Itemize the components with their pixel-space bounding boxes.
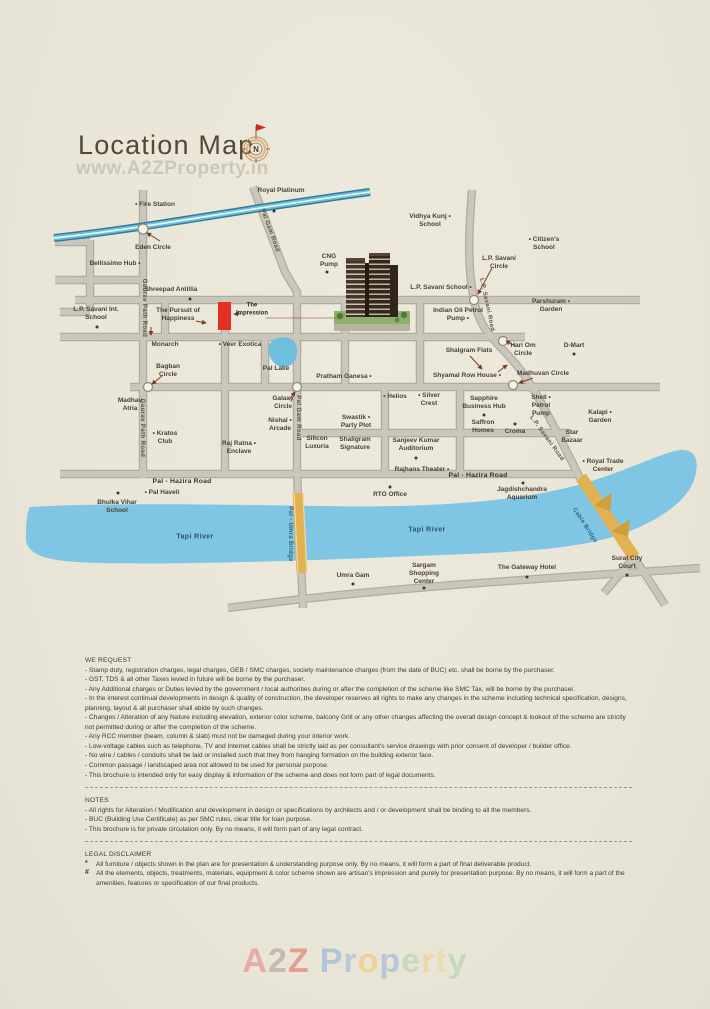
label-shreepad-antillia: Shreepad Antillia xyxy=(145,286,198,294)
label-nishal-arcade: Nishal • Arcade xyxy=(263,417,297,433)
location-map: • Fire Station Royal Platinum Eden Circl… xyxy=(0,175,710,625)
we-request-section: WE REQUEST - Stamp duty, registration ch… xyxy=(85,656,632,780)
label-madhuvan-circle: Madhuvan Circle xyxy=(517,370,569,378)
label-bhulka-vihar-school: Bhulka Vihar School xyxy=(93,499,141,515)
label-rto-office: RTO Office xyxy=(373,491,407,499)
label-tapi-river-west: Tapi River xyxy=(176,534,213,543)
label-pratham-ganesa: Pratham Ganesa • xyxy=(316,373,371,381)
poi-dot xyxy=(483,414,486,417)
label-eden-circle: Eden Circle xyxy=(133,244,173,252)
we-request-item: - Changes / Alteration of any Nature inc… xyxy=(85,713,632,732)
we-request-item: - Any RCC member (beam, column & slab) m… xyxy=(85,732,632,742)
building-rendering xyxy=(334,253,410,331)
poi-dot xyxy=(514,423,517,426)
map-canvas xyxy=(0,175,710,625)
poi-dot xyxy=(573,353,576,356)
label-pal-hazira-road-west: Pal - Hazira Road xyxy=(153,478,212,486)
watermark-letter: Z xyxy=(288,942,310,981)
label-the-impression: The Impression xyxy=(234,303,270,318)
label-monarch: Monarch xyxy=(151,341,178,349)
watermark-letter: e xyxy=(401,942,421,981)
label-silicon-luxuria: Silicon Luxuria xyxy=(301,435,333,451)
label-pursuit-of-happiness: The Pursuit of Happiness xyxy=(156,307,200,323)
legal-marker: * xyxy=(85,860,96,870)
label-jagdishchandra-aquarium: Jagdishchandra Aquarium xyxy=(489,486,555,502)
label-royal-platinum: Royal Platinum xyxy=(256,187,306,195)
we-request-item: - Common passage / landscaped area not a… xyxy=(85,761,632,771)
we-request-item: - Any Additional charges or Duties levie… xyxy=(85,685,632,695)
poi-dot xyxy=(96,326,99,329)
brochure-page: Location Map N www.A2ZProperty.in xyxy=(0,0,710,1009)
label-silver-crest: • Silver Crest xyxy=(412,392,446,408)
label-fire-station: • Fire Station xyxy=(135,201,175,209)
label-vidhya-kunj-school: Vidhya Kunj • School xyxy=(399,213,461,229)
label-veer-exotica: • Veer Exotica xyxy=(219,341,262,349)
watermark-letter: P xyxy=(320,942,344,981)
watermark-letter: t xyxy=(435,942,447,981)
notes-item: - This brochure is for private circulati… xyxy=(85,825,632,835)
label-pal-lake: Pal Lake xyxy=(263,365,289,373)
notes-section: NOTES - All rights for Alteration / Modi… xyxy=(85,796,632,834)
page-title: Location Map xyxy=(78,130,255,161)
impression-site-marker xyxy=(218,302,231,330)
poi-dot xyxy=(522,482,525,485)
label-bagban-circle: Bagban Circle xyxy=(150,363,186,379)
poi-dot xyxy=(352,583,355,586)
poi-dot xyxy=(415,457,418,460)
poi-dot xyxy=(526,576,529,579)
notes-item: - BUC (Building Use Certificate) as per … xyxy=(85,815,632,825)
pal-lake-water xyxy=(268,337,297,367)
label-raj-ratna-enclave: Raj Ratna • Enclave xyxy=(217,440,261,456)
label-sapphire-business-hub: Sapphire Business Hub xyxy=(456,395,512,411)
watermark-bottom: A2ZProperty xyxy=(0,942,710,981)
label-lp-savani-int-school: L.P. Savani Int. School xyxy=(67,306,125,322)
watermark-letter: 2 xyxy=(268,942,288,981)
legal-text-sections: WE REQUEST - Stamp duty, registration ch… xyxy=(85,656,632,888)
we-request-heading: WE REQUEST xyxy=(85,656,632,666)
label-star-bazaar: Star Bazaar xyxy=(558,429,586,445)
label-tapi-river-east: Tapi River xyxy=(408,527,445,536)
label-kalapi-garden: Kalapi • Garden xyxy=(584,409,616,425)
label-citizens-school: • Citizen's School xyxy=(518,236,570,252)
compass-north-letter: N xyxy=(253,145,259,154)
watermark-letter: p xyxy=(379,942,401,981)
poi-dot xyxy=(117,492,120,495)
legal-item: * All furniture / objects shown in the p… xyxy=(85,860,632,870)
label-surat-city-court: Surat City Court xyxy=(609,555,645,571)
label-bellissimo-hub: Bellissimo Hub • xyxy=(86,260,144,268)
label-gaurav-path-road-north: Gaurav Path Road xyxy=(139,279,147,337)
dashed-separator xyxy=(85,841,632,842)
label-parshuram-garden: Parshuram • Garden xyxy=(528,298,574,314)
watermark-letter: r xyxy=(421,942,435,981)
we-request-item: - Stamp duty, registration charges, lega… xyxy=(85,666,632,676)
label-kratos-club: • Kratos Club xyxy=(148,430,182,446)
poi-dot xyxy=(626,574,629,577)
label-shyamal-row-house: Shyamal Row House • xyxy=(433,372,501,380)
we-request-item: - This brochure is intended only for eas… xyxy=(85,771,632,781)
notes-heading: NOTES xyxy=(85,796,632,806)
label-shalgram-flats: Shalgram Flats xyxy=(446,347,493,355)
label-hari-om-circle: Hari Om Circle xyxy=(505,342,541,358)
label-sanjeev-kumar-auditorium: Sanjeev Kumar Auditorium xyxy=(385,437,447,453)
label-lp-savani-school: L.P. Savani School • xyxy=(410,284,471,292)
label-pal-haveli: • Pal Haveli xyxy=(145,489,180,497)
label-shaligram-signature: Shaligram Signature xyxy=(333,436,377,452)
poi-dot xyxy=(273,210,276,213)
legal-text: All the elements, objects, treatments, m… xyxy=(96,869,632,888)
poi-dot xyxy=(423,587,426,590)
we-request-item: - No wire / cables / conduits shall be l… xyxy=(85,751,632,761)
pal-umra-bridge-span xyxy=(294,493,307,573)
label-saffron-homes: Saffron Homes xyxy=(466,419,500,435)
poi-dot xyxy=(389,486,392,489)
legal-disclaimer-section: LEGAL DISCLAIMER * All furniture / objec… xyxy=(85,850,632,888)
poi-dot xyxy=(189,298,192,301)
label-cng-pump: CNG Pump xyxy=(314,253,344,269)
label-helios: • Helios xyxy=(383,393,407,401)
legal-marker: # xyxy=(85,869,96,888)
dashed-separator xyxy=(85,787,632,788)
watermark-letter: o xyxy=(358,942,380,981)
we-request-item: - In the interest continual developments… xyxy=(85,694,632,713)
notes-item: - All rights for Alteration / Modificati… xyxy=(85,806,632,816)
label-royal-trade-center: • Royal Trade Center xyxy=(577,458,629,474)
legal-item: # All the elements, objects, treatments,… xyxy=(85,869,632,888)
label-pal-gam-road-south: Pal Gam Road xyxy=(293,395,301,440)
label-indian-oil-petrol-pump: Indian Oil Petrol Pump • xyxy=(431,307,485,323)
label-pal-hazira-road-east: Pal - Hazira Road xyxy=(449,472,508,480)
we-request-item: - GST, TDS & all other Taxes levied in f… xyxy=(85,675,632,685)
label-croma: Croma xyxy=(505,428,526,436)
watermark-letter: A xyxy=(242,942,268,981)
legal-text: All furniture / objects shown in the pla… xyxy=(96,860,632,870)
poi-dot xyxy=(326,271,329,274)
label-swastik-party-plot: Swastik • Party Plot xyxy=(335,414,377,430)
label-lp-savani-circle: L.P. Savani Circle xyxy=(475,255,523,271)
label-pal-umra-bridge: Pal - Umra Bridge xyxy=(285,506,293,561)
label-d-mart: D-Mart xyxy=(564,342,585,350)
watermark-letter: y xyxy=(448,942,468,981)
canal xyxy=(54,192,370,238)
label-gaurav-path-road-south: Gaurav Path Road xyxy=(137,399,145,457)
label-rajhans-theater: Rajhans Theater • xyxy=(395,466,450,474)
we-request-item: - Low-voltage cables such as telephone, … xyxy=(85,742,632,752)
legal-disclaimer-heading: LEGAL DISCLAIMER xyxy=(85,850,632,860)
label-gateway-hotel: The Gateway Hotel xyxy=(498,564,556,572)
label-sargam-shopping-center: Sargam Shopping Center xyxy=(398,562,450,586)
label-umra-gam: Umra Gam xyxy=(337,572,370,580)
watermark-letter: r xyxy=(343,942,357,981)
